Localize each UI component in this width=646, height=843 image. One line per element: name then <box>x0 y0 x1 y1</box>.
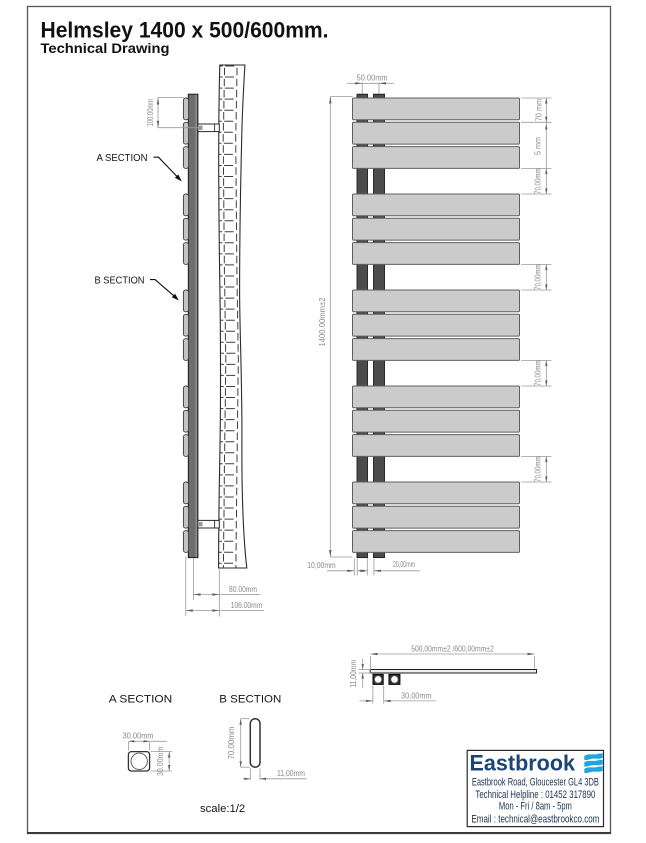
svg-text:Helmsley 1400 x 500/600mm.: Helmsley 1400 x 500/600mm. <box>41 17 329 42</box>
svg-text:10,00mm: 10,00mm <box>307 560 336 570</box>
svg-text:Technical Helpline : 01452 317: Technical Helpline : 01452 317890 <box>475 789 595 801</box>
svg-text:Eastbrook: Eastbrook <box>470 751 576 776</box>
svg-text:Mon - Fri / 8am - 5pm: Mon - Fri / 8am - 5pm <box>499 801 572 813</box>
svg-text:80.00mm: 80.00mm <box>229 584 257 594</box>
svg-text:A SECTION: A SECTION <box>109 694 173 706</box>
svg-text:11,00mm: 11,00mm <box>348 660 358 688</box>
svg-text:70,00mm: 70,00mm <box>533 456 542 482</box>
svg-text:100.00mm: 100.00mm <box>145 99 155 127</box>
svg-text:11,00mm: 11,00mm <box>277 768 305 778</box>
svg-text:30.00mm: 30.00mm <box>155 746 165 776</box>
svg-text:B SECTION: B SECTION <box>219 694 281 706</box>
svg-text:B SECTION: B SECTION <box>95 275 145 286</box>
svg-text:500,00mm±2 /600,00mm±2: 500,00mm±2 /600,00mm±2 <box>411 643 494 653</box>
svg-text:1400.00mm±2: 1400.00mm±2 <box>317 297 327 346</box>
svg-text:30,00mm: 30,00mm <box>401 690 432 700</box>
svg-text:70,00mm: 70,00mm <box>533 168 542 194</box>
svg-text:70 mm: 70 mm <box>534 98 543 121</box>
svg-text:Eastbrook Road, Gloucester GL4: Eastbrook Road, Gloucester GL4 3DB <box>472 776 599 788</box>
svg-text:20,00mm: 20,00mm <box>393 559 415 569</box>
svg-text:Email : technical@eastbrookco.: Email : technical@eastbrookco.com <box>471 814 599 826</box>
svg-text:106.00mm: 106.00mm <box>231 600 263 610</box>
svg-text:30.00mm: 30.00mm <box>123 731 154 741</box>
svg-text:5 mm: 5 mm <box>534 137 543 155</box>
svg-text:70,00mm: 70,00mm <box>533 264 542 290</box>
svg-text:scale:1/2: scale:1/2 <box>200 803 245 815</box>
svg-text:Technical Drawing: Technical Drawing <box>41 40 170 56</box>
svg-text:70.00mm: 70.00mm <box>226 726 236 759</box>
svg-text:50.00mm: 50.00mm <box>357 73 388 83</box>
svg-text:70,00mm: 70,00mm <box>533 360 542 386</box>
svg-text:A SECTION: A SECTION <box>97 153 148 164</box>
